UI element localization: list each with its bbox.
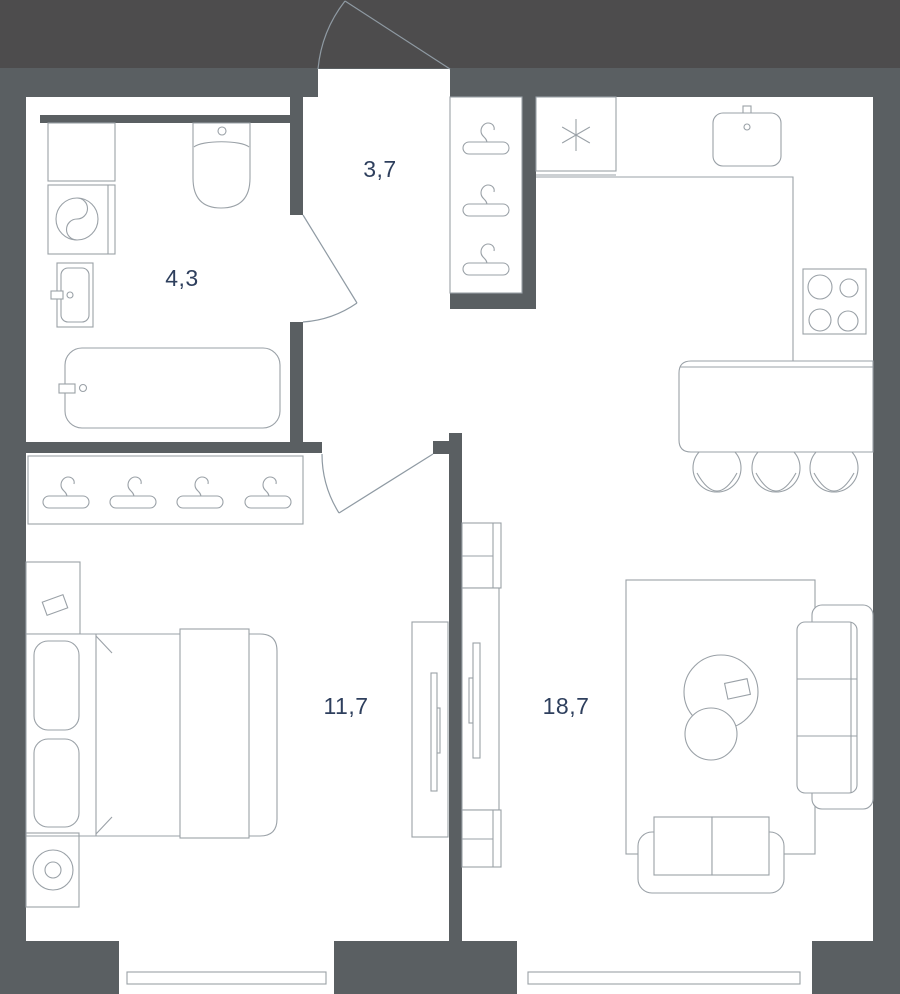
pillow [34,739,79,827]
bar-counter-island [679,361,873,452]
tv-bedroom [431,673,437,791]
coffee-table-small [685,708,737,760]
floorplan-canvas: 3,7 4,3 11,7 18,7 [0,0,900,994]
wall-bathroom-bottom [26,442,322,453]
wall-bathroom-right-upper [290,97,303,215]
wall-closet-bottom [450,293,536,309]
wall-bedroom-door-stub [433,441,449,454]
kitchen-sink [713,106,781,166]
wall-bathroom-top [40,115,303,123]
sofa-large [797,605,873,809]
wall-closet-right [522,97,536,309]
wall-bathroom-right-lower [290,322,303,443]
tv-unit-living [462,523,501,867]
bed [26,629,277,838]
bathroom-area-label: 4,3 [165,265,198,291]
wall-bedroom-living-divider [449,433,462,941]
pillow [34,641,79,730]
tv-unit-bedroom [412,622,448,837]
window-living [517,941,812,994]
floorplan: 3,7 4,3 11,7 18,7 [0,0,900,994]
bedroom-area-label: 11,7 [323,693,368,719]
stove [803,269,866,334]
entrance-opening [318,69,450,97]
sofa-small [638,817,784,893]
tv-living [473,643,480,758]
hallway-area-label: 3,7 [363,156,396,182]
window-bedroom [119,941,334,994]
blanket [180,629,249,838]
living-area-label: 18,7 [543,693,590,719]
